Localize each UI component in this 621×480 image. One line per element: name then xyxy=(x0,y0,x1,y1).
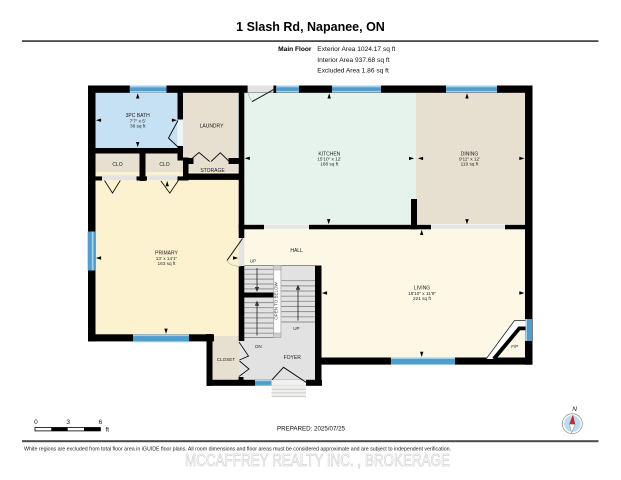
svg-text:Excluded Area 1.86 sq ft: Excluded Area 1.86 sq ft xyxy=(317,68,389,75)
svg-text:1 Slash Rd, Napanee, ON: 1 Slash Rd, Napanee, ON xyxy=(236,20,385,34)
svg-text:CLOSET: CLOSET xyxy=(217,357,236,362)
svg-text:OPEN TO BELOW: OPEN TO BELOW xyxy=(274,281,279,319)
svg-text:PREPARED: 2025/07/25: PREPARED: 2025/07/25 xyxy=(277,426,346,433)
svg-text:0: 0 xyxy=(34,419,38,426)
svg-text:188 sq ft: 188 sq ft xyxy=(320,161,339,166)
svg-text:MCCAFFREY REALTY INC. , BROKER: MCCAFFREY REALTY INC. , BROKERAGE xyxy=(185,450,450,470)
svg-text:LAUNDRY: LAUNDRY xyxy=(200,123,224,129)
svg-text:119 sq ft: 119 sq ft xyxy=(461,161,479,166)
svg-text:FOYER: FOYER xyxy=(284,355,302,361)
svg-text:38 sq ft: 38 sq ft xyxy=(130,124,146,129)
svg-text:221 sq ft: 221 sq ft xyxy=(413,296,432,301)
svg-text:CLO: CLO xyxy=(112,162,122,168)
svg-text:6: 6 xyxy=(99,419,103,426)
svg-text:DN: DN xyxy=(255,344,262,349)
svg-text:UP: UP xyxy=(293,326,299,331)
svg-text:Main Floor: Main Floor xyxy=(278,46,312,53)
svg-text:HALL: HALL xyxy=(290,248,303,254)
svg-text:163 sq ft: 163 sq ft xyxy=(158,261,177,266)
svg-text:N: N xyxy=(572,406,577,413)
svg-text:UP: UP xyxy=(250,259,256,264)
svg-text:STORAGE: STORAGE xyxy=(200,168,225,174)
svg-text:Exterior Area 1024.17 sq ft: Exterior Area 1024.17 sq ft xyxy=(317,46,395,53)
svg-text:Interior Area 937.68 sq ft: Interior Area 937.68 sq ft xyxy=(317,57,389,64)
svg-text:CLO: CLO xyxy=(159,162,169,168)
svg-text:3: 3 xyxy=(66,419,70,426)
svg-text:F/P: F/P xyxy=(511,344,518,349)
svg-text:ft: ft xyxy=(106,427,110,434)
